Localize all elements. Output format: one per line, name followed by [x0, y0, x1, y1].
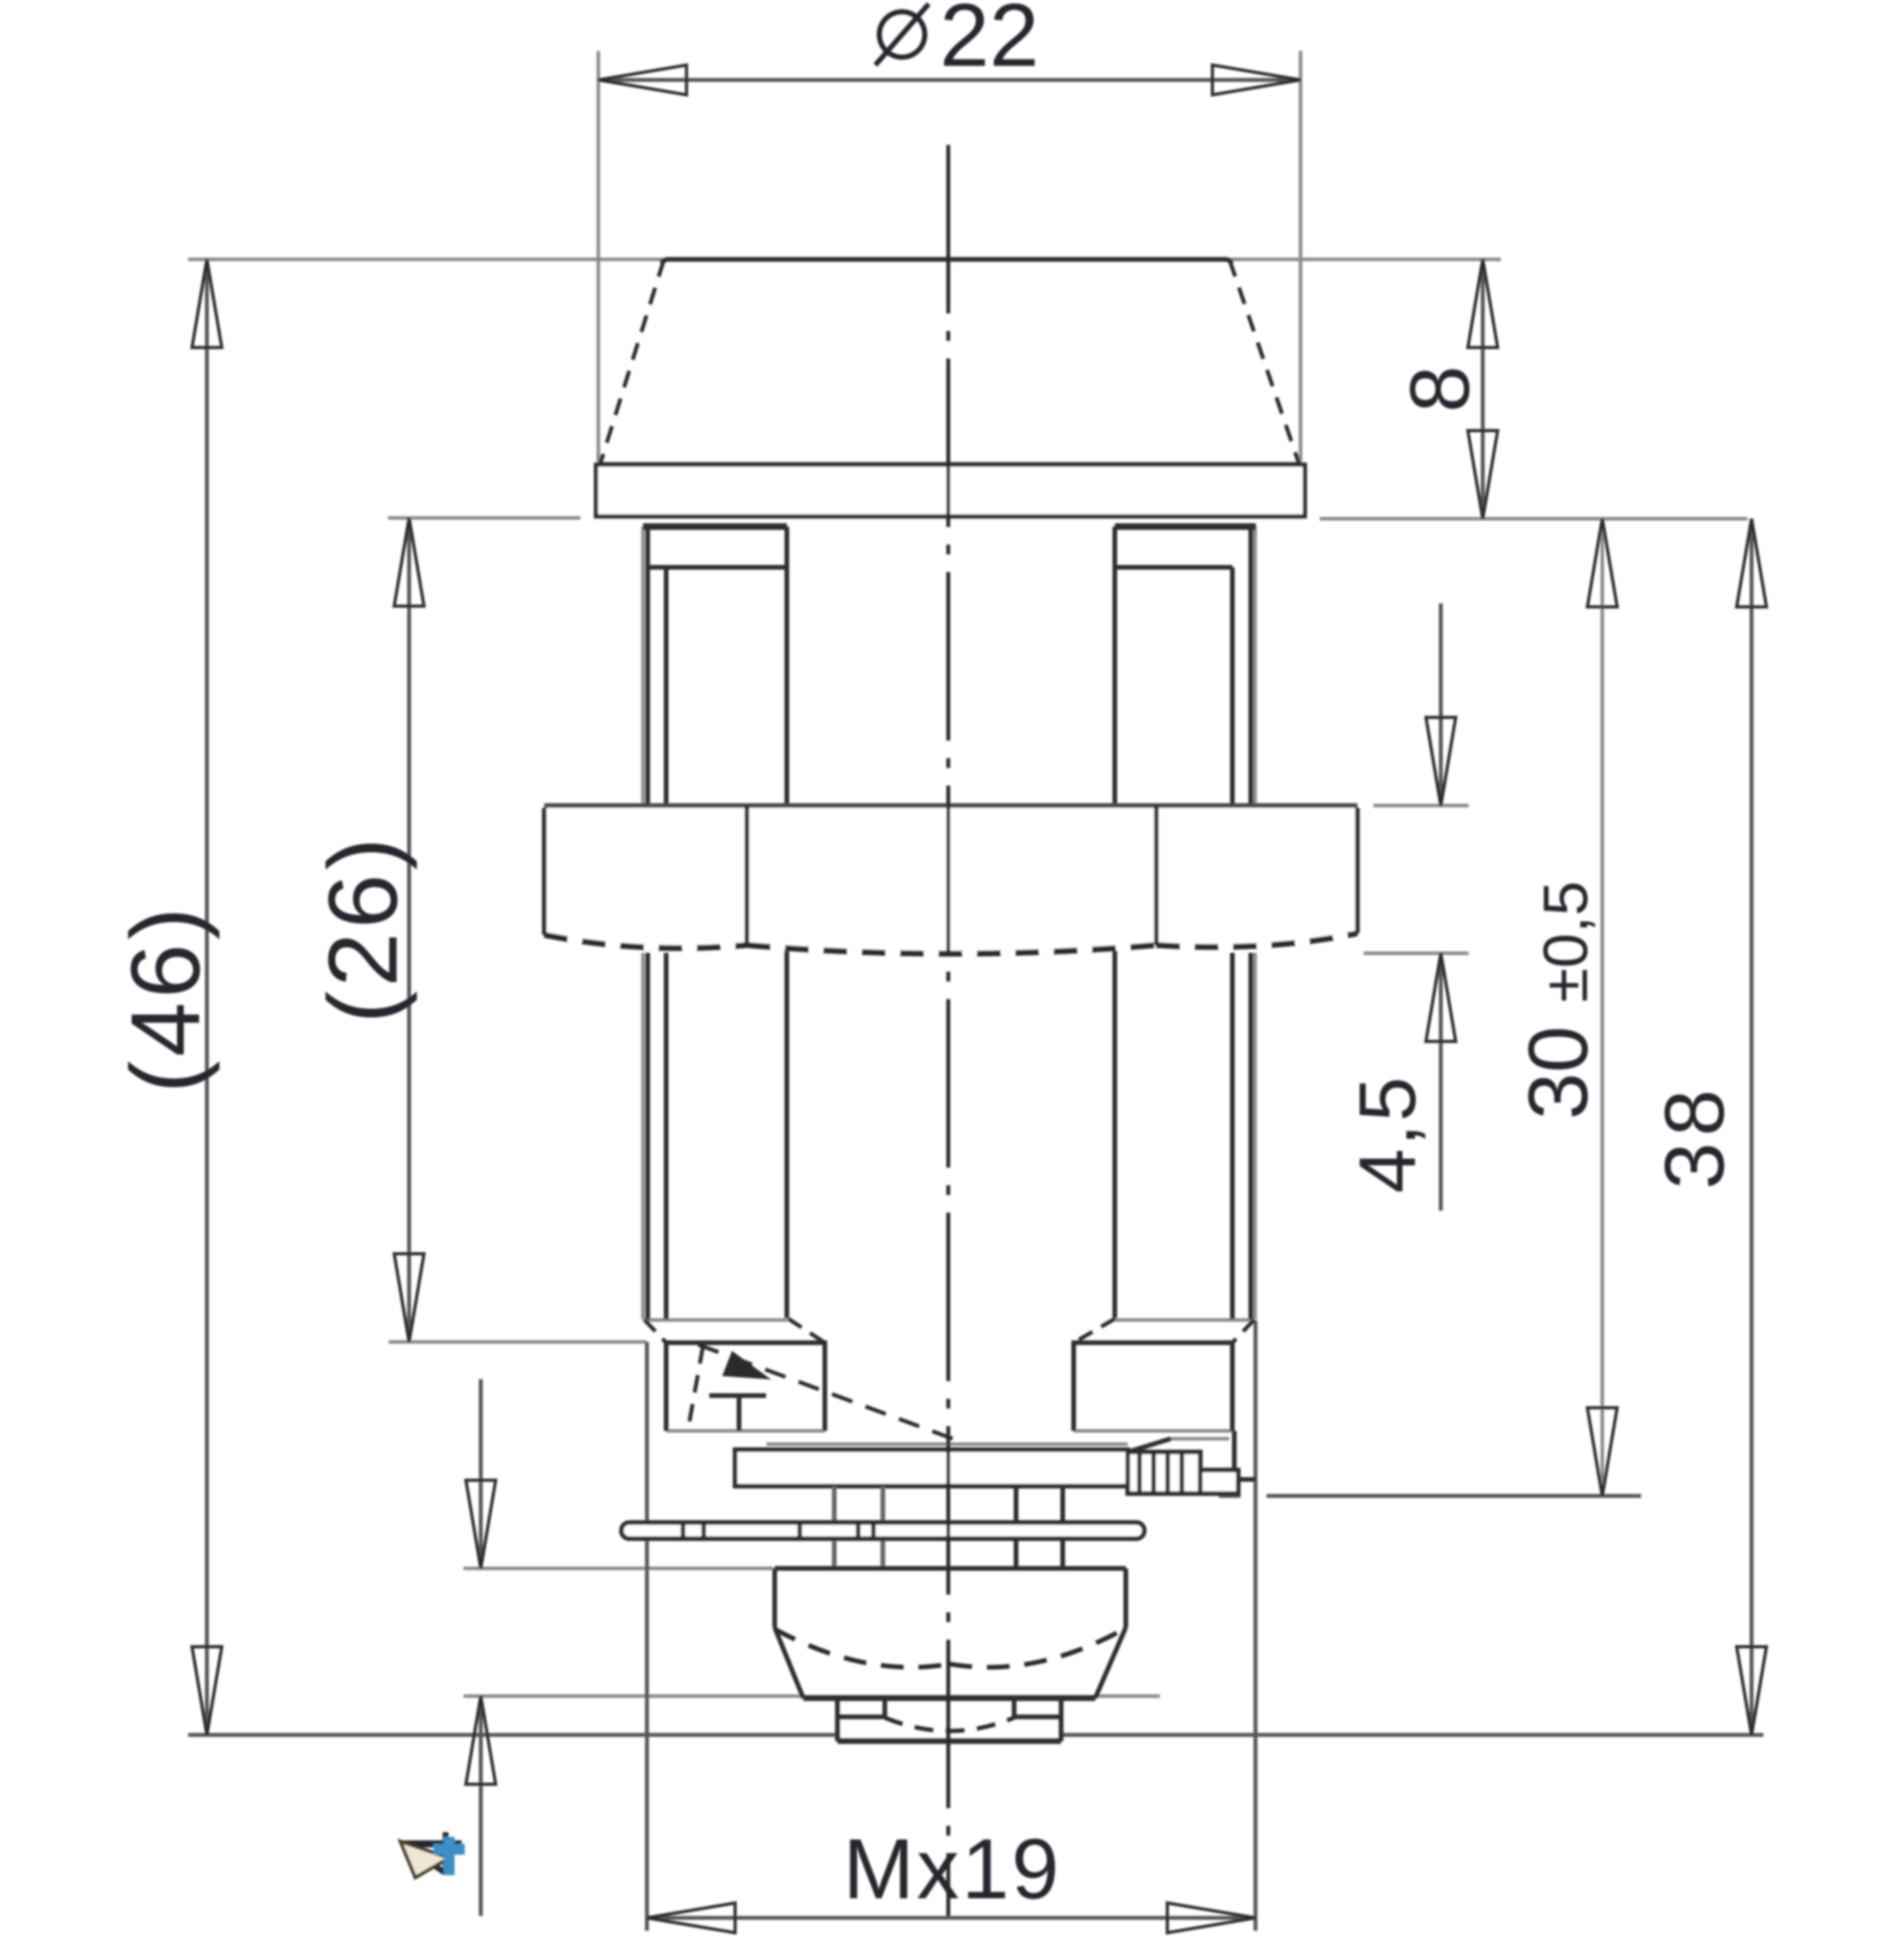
svg-text:Mx19: Mx19: [843, 1821, 1061, 1917]
svg-text:(46): (46): [111, 903, 220, 1094]
svg-text:38: 38: [1647, 1083, 1741, 1189]
svg-text:8: 8: [1392, 366, 1487, 413]
svg-text:(26): (26): [308, 834, 417, 1024]
svg-text:22: 22: [940, 0, 1039, 85]
svg-text:4,5: 4,5: [1342, 1075, 1432, 1193]
